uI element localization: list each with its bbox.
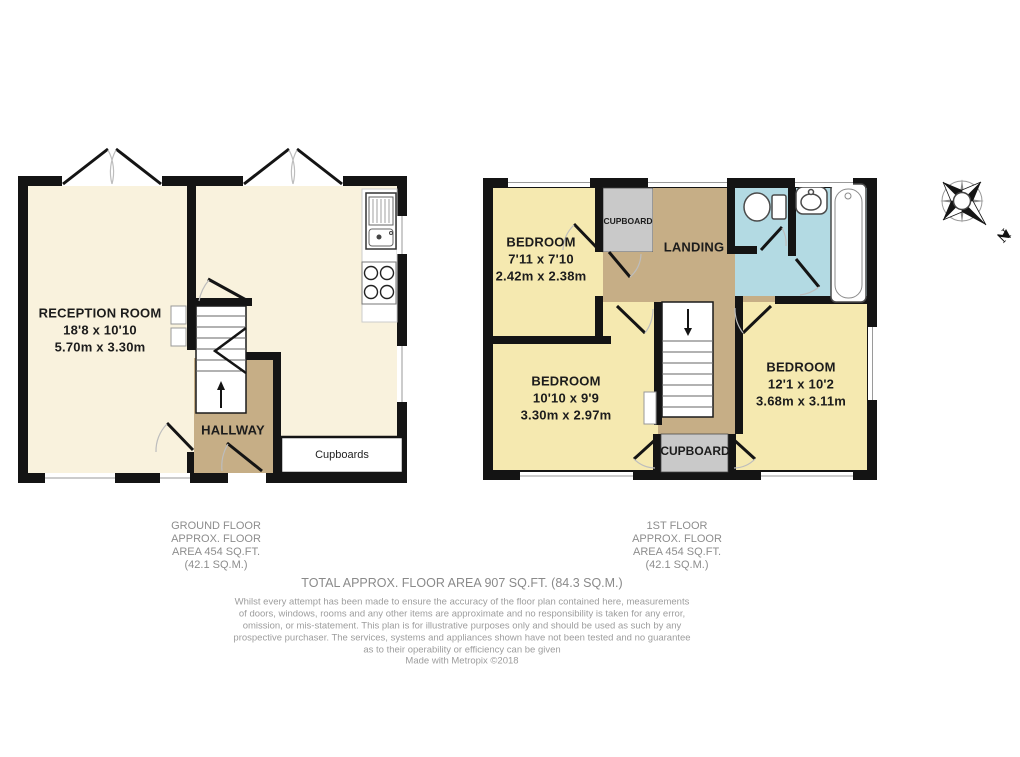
- gf-kitchen-fixtures: [362, 189, 397, 322]
- ff-caption-line3: AREA 454 SQ.FT.: [633, 546, 721, 558]
- cupboard-bottom-label: CUPBOARD: [660, 444, 729, 458]
- bath-tub: [831, 184, 866, 302]
- reception-room-metric: 5.70m x 3.30m: [55, 340, 146, 355]
- disclaimer-line2: of doors, windows, rooms and any other i…: [239, 609, 685, 620]
- metropix-credit: Made with Metropix ©2018: [405, 656, 518, 667]
- gf-stairs: [196, 306, 246, 413]
- bedroom3-label: BEDROOM: [766, 360, 835, 375]
- cupboards-label: Cupboards: [315, 449, 369, 461]
- ff-caption-line1: 1ST FLOOR: [647, 520, 708, 532]
- disclaimer-line5: as to their operability or efficiency ca…: [363, 645, 560, 656]
- cupboard-top-label: CUPBOARD: [603, 216, 652, 226]
- compass-rose: N: [940, 179, 1013, 246]
- first-floor-plan: [483, 178, 877, 480]
- toilet-bowl: [744, 193, 770, 221]
- gf-fireplace-nook: [171, 306, 186, 324]
- bedroom1-metric: 2.42m x 2.38m: [496, 269, 587, 284]
- gf-caption-line1: GROUND FLOOR: [171, 520, 261, 532]
- gf-caption-line4: (42.1 SQ.M.): [185, 559, 248, 571]
- hallway-label: HALLWAY: [201, 423, 265, 438]
- disclaimer-line4: prospective purchaser. The services, sys…: [233, 633, 690, 644]
- bedroom3-imperial: 12'1 x 10'2: [768, 377, 834, 392]
- bedroom2-imperial: 10'10 x 9'9: [533, 391, 599, 406]
- compass-north-label: N: [993, 225, 1014, 246]
- toilet-cistern: [772, 195, 786, 219]
- bedroom1-imperial: 7'11 x 7'10: [508, 252, 574, 267]
- reception-room-label: RECEPTION ROOM: [39, 306, 162, 321]
- bedroom2-label: BEDROOM: [531, 374, 600, 389]
- bedroom2-metric: 3.30m x 2.97m: [521, 408, 612, 423]
- gf-caption-line2: APPROX. FLOOR: [171, 533, 261, 545]
- ff-caption-line4: (42.1 SQ.M.): [646, 559, 709, 571]
- ff-caption-line2: APPROX. FLOOR: [632, 533, 722, 545]
- bedroom3-metric: 3.68m x 3.11m: [756, 394, 846, 409]
- floorplan-page: N RECEPTION ROOM 18'8 x 10'10 5.70m x 3.…: [0, 0, 1020, 757]
- disclaimer-line1: Whilst every attempt has been made to en…: [235, 597, 690, 608]
- ff-stairs: [662, 302, 713, 417]
- bedroom1-label: BEDROOM: [506, 235, 575, 250]
- reception-room-imperial: 18'8 x 10'10: [63, 323, 137, 338]
- ff-nook: [644, 392, 656, 424]
- total-area-line: TOTAL APPROX. FLOOR AREA 907 SQ.FT. (84.…: [301, 576, 622, 590]
- landing-label: LANDING: [664, 240, 725, 255]
- disclaimer-line3: omission, or mis-statement. This plan is…: [243, 621, 682, 632]
- gf-caption-line3: AREA 454 SQ.FT.: [172, 546, 260, 558]
